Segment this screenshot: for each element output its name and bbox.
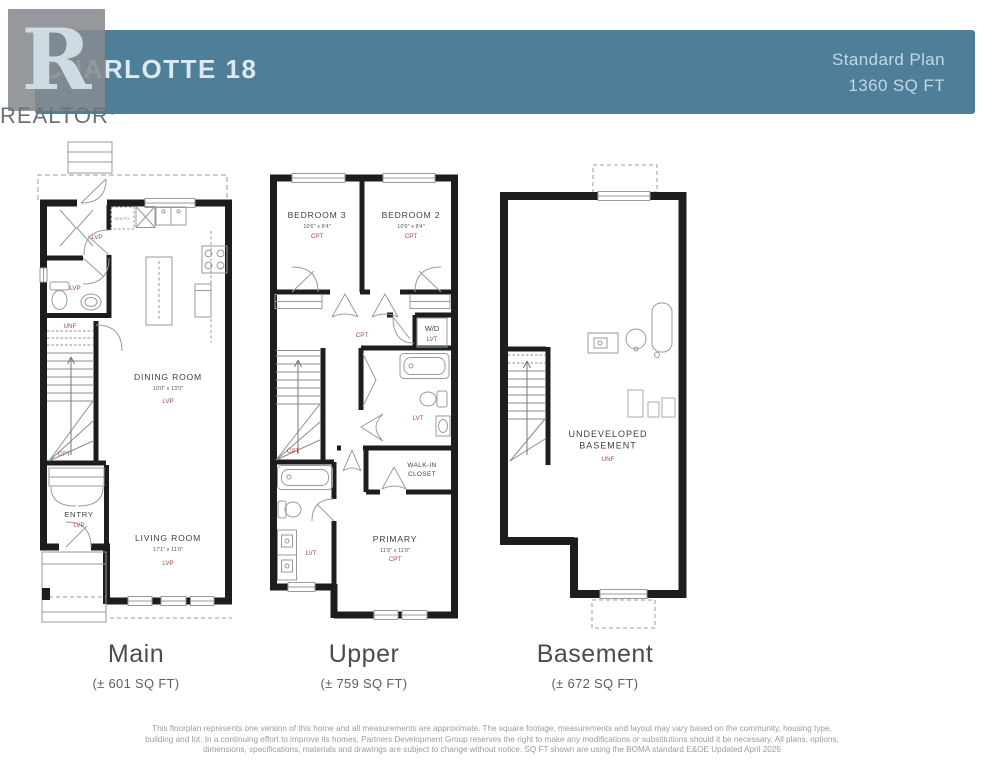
stove-icon	[202, 246, 227, 273]
disclaimer-text: This floorplan represents one version of…	[142, 724, 842, 756]
dining-room-dims: 10'0" x 13'0"	[153, 386, 184, 392]
basement-mechanical	[588, 303, 675, 417]
registered-mark: ®	[109, 107, 117, 118]
main-porch	[42, 552, 232, 622]
basement-material: UNF	[602, 456, 615, 463]
furnace-icon	[588, 333, 618, 353]
main-interior-walls	[46, 205, 109, 547]
living-room-material: LVP	[162, 560, 173, 567]
bath-door	[83, 258, 109, 284]
plan-type-label: Standard Plan	[832, 47, 945, 73]
stair-material-unf: UNF	[64, 323, 77, 330]
bedroom3-dims: 10'6" x 8'4"	[303, 224, 331, 230]
primary-dims: 11'9" x 11'0"	[380, 548, 410, 554]
bedroom3-name: BEDROOM 3	[288, 210, 347, 220]
toilet-tank-icon	[437, 391, 447, 407]
main-stairs	[47, 331, 93, 461]
floorplan-main: PANTRY LVP LVP UNF CPT DINING ROOM 10'0"…	[35, 135, 237, 627]
wic-door	[382, 467, 406, 489]
basement-labels: UNDEVELOPED BASEMENT UNF	[568, 429, 647, 463]
entry-material: LVP	[73, 522, 84, 529]
bedroom3-closet-door	[292, 267, 318, 292]
basement-stairs	[508, 355, 545, 461]
bedroom3-door	[332, 294, 358, 317]
washer-dryer-label: W/D	[425, 324, 439, 333]
basement-window-wells	[592, 165, 657, 628]
dining-room-material: LVP	[162, 398, 173, 405]
caption-basement: Basement (± 672 SQ FT)	[485, 640, 705, 691]
basement-stair-door	[96, 325, 122, 351]
basement-name-1: UNDEVELOPED	[568, 429, 647, 439]
upper-bath-fixtures	[400, 354, 450, 437]
pantry-label: PANTRY	[115, 217, 131, 221]
ensuite-material: LVT	[306, 550, 317, 557]
dining-room-name: DINING ROOM	[134, 372, 202, 382]
plan-total-sqft: 1360 SQ FT	[832, 73, 945, 99]
floor-name-upper: Upper	[254, 640, 474, 669]
fridge-icon	[195, 284, 211, 317]
upper-stairs	[276, 351, 320, 461]
laundry-door	[393, 317, 414, 343]
wic-label-2: CLOSET	[408, 471, 436, 478]
water-heater-icon	[626, 329, 646, 349]
main-bath-material: LVP	[69, 285, 80, 292]
main-mudroom-closet-doors	[60, 210, 93, 246]
basement-interior-walls	[504, 347, 548, 465]
plan-summary: Standard Plan 1360 SQ FT	[832, 47, 945, 99]
floorplan-basement: UNDEVELOPED BASEMENT UNF	[490, 163, 695, 633]
linen-doors	[363, 354, 376, 406]
entry-closet-doors	[51, 487, 103, 506]
mudroom-material: LVP	[91, 234, 102, 241]
basement-name-2: BASEMENT	[579, 441, 637, 451]
stair-material-cpt: CPT	[58, 451, 71, 458]
wic-label-1: WALK-IN	[407, 462, 436, 469]
floor-sqft-basement: (± 672 SQ FT)	[485, 676, 705, 691]
upper-interior-walls	[273, 178, 455, 592]
floor-name-main: Main	[26, 640, 246, 669]
bath-door	[361, 414, 383, 441]
bedroom2-dims: 10'6" x 8'4"	[397, 224, 425, 230]
caption-upper: Upper (± 759 SQ FT)	[254, 640, 474, 691]
primary-material: CPT	[389, 556, 402, 563]
toilet-icon	[52, 291, 67, 310]
floor-sqft-main: (± 601 SQ FT)	[26, 676, 246, 691]
main-door-swings	[51, 179, 122, 547]
sink-icon	[81, 294, 101, 310]
deck-door	[81, 179, 106, 203]
upper-ensuite-fixtures	[278, 466, 333, 581]
washer-dryer-material: LVT	[427, 336, 438, 343]
ensuite-door	[312, 499, 334, 521]
main-kitchen-fixtures	[111, 207, 227, 344]
bedroom3-material: CPT	[311, 233, 324, 240]
header-banner: CHARLOTTE 18 Standard Plan 1360 SQ FT	[35, 30, 975, 114]
primary-name: PRIMARY	[373, 534, 418, 544]
realtor-wordmark: REALTOR®	[0, 103, 130, 129]
main-deck-chimney	[38, 142, 227, 200]
ensuite-toilet-icon	[285, 502, 301, 517]
toilet-tank-icon	[50, 282, 69, 290]
floorplan-page: CHARLOTTE 18 Standard Plan 1360 SQ FT R …	[0, 0, 984, 768]
floor-name-basement: Basement	[485, 640, 705, 669]
primary-door	[343, 450, 361, 471]
upper-stair-material: CPT	[287, 448, 300, 455]
living-room-dims: 17'1" x 11'0"	[153, 547, 183, 553]
basement-windows	[598, 192, 650, 599]
caption-main: Main (± 601 SQ FT)	[26, 640, 246, 691]
upper-bath-material: LVT	[413, 415, 424, 422]
hw-tank-icon	[652, 303, 672, 352]
bedroom2-door	[372, 294, 398, 317]
main-entry-closet	[49, 468, 104, 486]
bedroom2-closet-door	[415, 267, 441, 292]
living-room-name: LIVING ROOM	[135, 533, 201, 543]
floorplan-upper: BEDROOM 3 10'6" x 8'4" CPT BEDROOM 2 10'…	[262, 160, 464, 628]
realtor-word: REALTOR	[0, 103, 109, 128]
entry-name: ENTRY	[64, 510, 94, 519]
bedroom2-name: BEDROOM 2	[382, 210, 441, 220]
realtor-logo-icon: R	[8, 9, 105, 111]
bedroom2-material: CPT	[405, 233, 418, 240]
hall-material: CPT	[356, 332, 369, 339]
toilet-icon	[420, 392, 436, 406]
realtor-r-glyph: R	[22, 18, 92, 102]
main-labels: PANTRY LVP LVP UNF CPT DINING ROOM 10'0"…	[58, 217, 202, 567]
floor-sqft-upper: (± 759 SQ FT)	[254, 676, 474, 691]
upper-closets	[275, 295, 450, 309]
